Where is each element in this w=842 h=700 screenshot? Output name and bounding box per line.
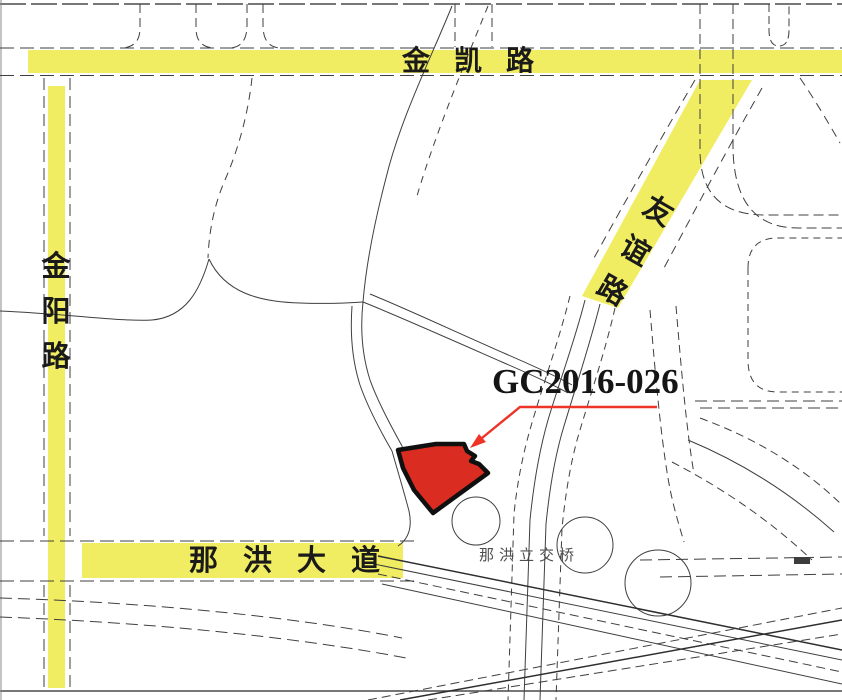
leader-line	[482, 407, 657, 438]
parcel-callout	[398, 407, 657, 513]
parcel-location-map: 那洪立交桥	[0, 0, 842, 700]
jinyang-char: 金	[41, 244, 71, 289]
jinyang-char: 阳	[41, 289, 71, 334]
jinyang-char: 路	[41, 334, 71, 379]
road-label-jinkai: 金凯路	[402, 45, 558, 77]
road-label-nahong: 那洪大道	[189, 544, 405, 576]
jinyang-road-band	[48, 86, 65, 688]
road-label-jinyang: 金 阳 路	[41, 244, 71, 379]
highlighted-roads	[28, 50, 842, 688]
parcel-code-label: GC2016-026	[492, 364, 679, 400]
illegible-road-mark	[794, 557, 810, 564]
road-network-svg	[0, 0, 842, 700]
parcel-polygon	[398, 444, 488, 513]
